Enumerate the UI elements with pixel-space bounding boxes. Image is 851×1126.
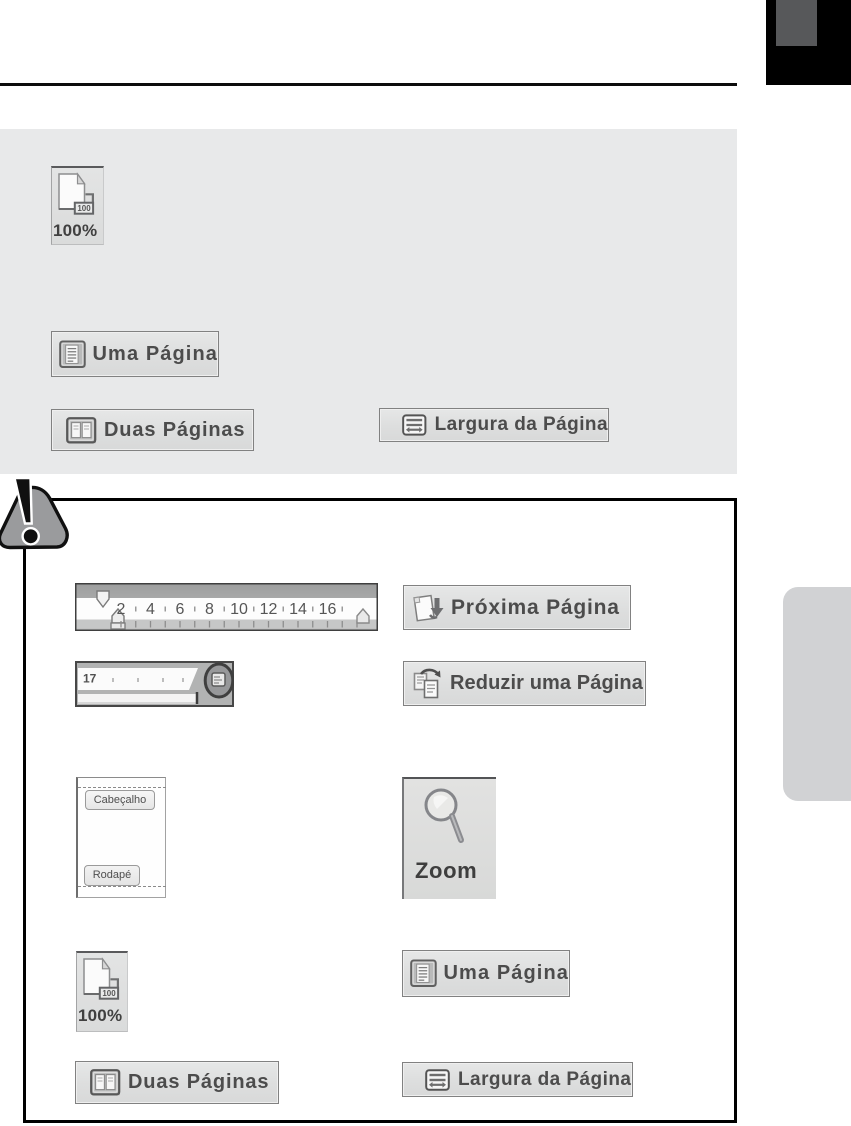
- svg-text:2: 2: [117, 601, 126, 618]
- svg-text:16: 16: [319, 601, 337, 618]
- svg-text:4: 4: [146, 601, 155, 618]
- svg-text:8: 8: [205, 601, 214, 618]
- svg-text:17: 17: [83, 672, 97, 686]
- svg-text:100: 100: [77, 204, 91, 213]
- svg-text:100: 100: [102, 989, 116, 998]
- svg-text:14: 14: [289, 601, 307, 618]
- svg-text:10: 10: [230, 601, 248, 618]
- svg-text:12: 12: [260, 601, 278, 618]
- svg-text:6: 6: [176, 601, 185, 618]
